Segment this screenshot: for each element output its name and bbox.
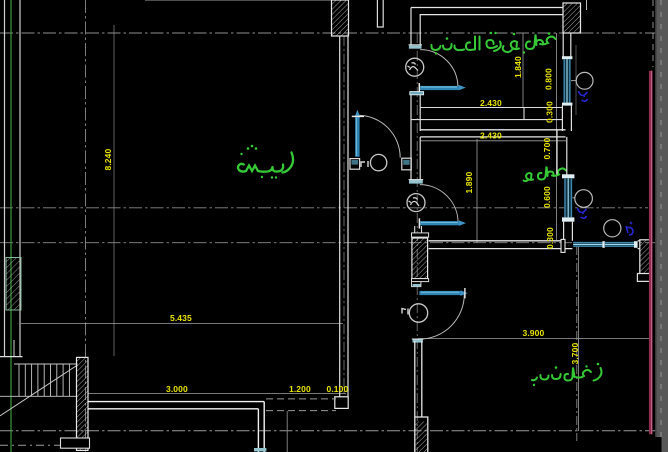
svg-text:0.700: 0.700 <box>542 138 552 160</box>
svg-text:0.300: 0.300 <box>545 101 555 123</box>
svg-text:5.435: 5.435 <box>170 313 192 323</box>
svg-text:1.890: 1.890 <box>464 172 474 194</box>
svg-text:0.300: 0.300 <box>545 227 555 249</box>
svg-text:8.240: 8.240 <box>103 149 113 171</box>
svg-text:2.430: 2.430 <box>480 131 502 141</box>
svg-text:0.600: 0.600 <box>542 186 552 208</box>
svg-text:3.900: 3.900 <box>523 328 545 338</box>
svg-text:2.430: 2.430 <box>480 98 502 108</box>
svg-text:1.840: 1.840 <box>513 56 523 78</box>
svg-text:0.800: 0.800 <box>544 68 554 90</box>
svg-text:1.200: 1.200 <box>289 384 311 394</box>
svg-text:3.700: 3.700 <box>570 343 580 365</box>
svg-text:0.100: 0.100 <box>327 384 349 394</box>
svg-text:3.000: 3.000 <box>166 384 188 394</box>
